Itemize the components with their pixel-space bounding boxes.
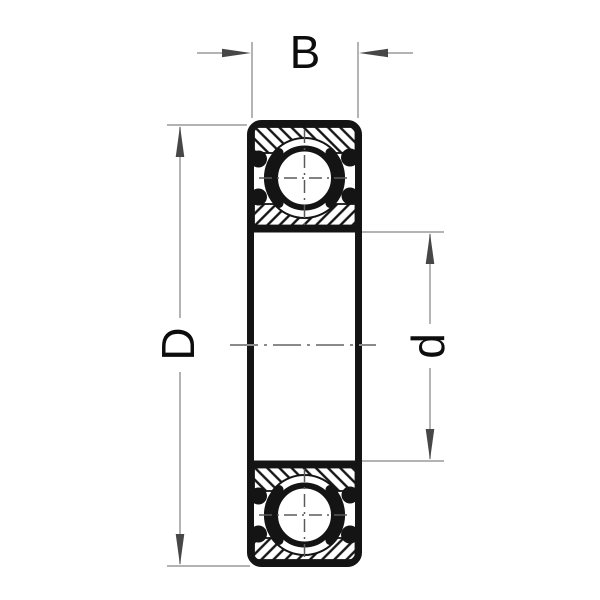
d-outer-arrow-up [176,126,185,157]
b-label: B [290,26,321,78]
bottom-section [250,468,359,561]
d-outer-label: D [152,327,204,360]
bottom-right-lower-seal-lobe [341,526,359,544]
top-left-lower-seal-lobe [250,189,267,206]
bottom-right-upper-seal-lobe [342,487,359,504]
top-left-upper-seal-lobe [250,151,267,168]
top-section [250,127,359,226]
d-bore-arrow-up [426,233,435,264]
bearing-drawing-svg: B D d [0,0,600,600]
bearing-body [230,124,376,564]
b-arrow-left [222,49,251,57]
b-arrow-right [359,49,388,57]
bearing-diagram: B D d [0,0,600,600]
d-bore-label: d [402,333,454,359]
d-outer-arrow-down [176,534,185,565]
d-bore-arrow-down [426,429,435,460]
top-right-lower-seal-lobe [342,188,359,205]
bottom-left-upper-seal-lobe [250,488,267,505]
dimension-B: B [197,26,413,118]
bottom-left-lower-seal-lobe [250,526,267,543]
top-right-upper-seal-lobe [341,149,359,167]
dimension-d: d [362,232,454,461]
